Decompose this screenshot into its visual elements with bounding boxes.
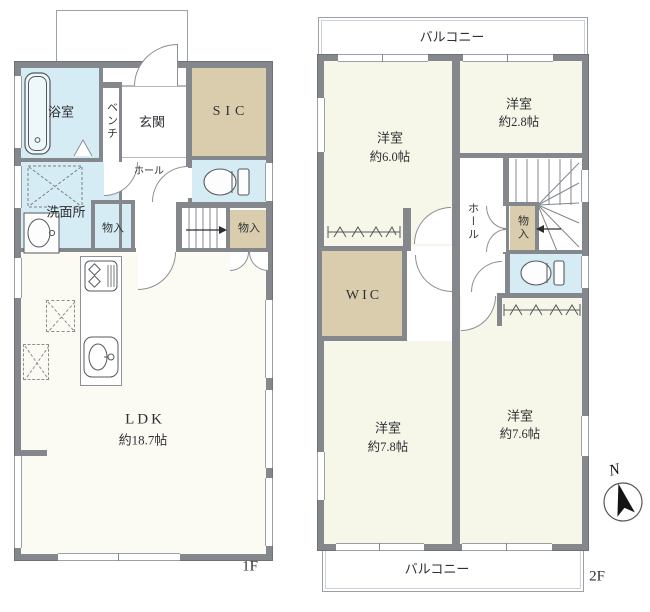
window (338, 54, 428, 62)
kitchen-sink-icon (83, 336, 119, 378)
room-label-wic: WIC (346, 289, 382, 303)
room-label-hall2f: ホール (467, 203, 478, 242)
hall-step-line (122, 157, 186, 158)
x-mark-icon (47, 301, 76, 333)
window-tick (379, 543, 380, 551)
closet-hanger-icon (502, 302, 582, 318)
wall-segment (186, 156, 272, 160)
stove-icon (84, 260, 118, 292)
wall-segment (188, 62, 272, 68)
wall-segment (452, 61, 460, 544)
wall-segment (186, 62, 192, 156)
window (265, 163, 273, 201)
room-size-6: 約6.0帖 (370, 151, 411, 164)
floor1-label: 1F (242, 560, 258, 575)
dashed-equipment-box (46, 300, 75, 332)
window (265, 478, 273, 546)
room-label-bench: ベンチ (106, 102, 117, 141)
room-label-6: 洋室 (377, 132, 403, 145)
window (14, 76, 22, 148)
stairs-icon (182, 206, 228, 252)
wall-segment (21, 158, 103, 162)
wall-segment (15, 62, 103, 68)
window (462, 543, 552, 551)
balcony-top-label: バルコニー (420, 31, 485, 44)
wall-segment (91, 200, 95, 252)
bathtub-icon (24, 72, 51, 155)
washing-machine-icon (27, 165, 83, 208)
wall-segment (91, 200, 135, 204)
compass-north-letter: N (606, 460, 623, 480)
window (14, 456, 22, 548)
window-tick (507, 54, 508, 62)
window (581, 170, 589, 202)
window (581, 256, 589, 288)
window (265, 300, 273, 378)
room-size-ldk: 約18.7帖 (119, 434, 168, 447)
room-label-storage-hall: 物入 (102, 224, 124, 235)
window-tick (118, 553, 119, 561)
window (317, 452, 325, 500)
room-label-storage-stairs: 物入 (238, 224, 260, 235)
room-label-76: 洋室 (507, 410, 533, 423)
wall-segment (497, 293, 582, 298)
wall-segment (99, 68, 103, 158)
wall-segment (131, 204, 135, 252)
window (336, 543, 424, 551)
room-size-78: 約7.8帖 (368, 441, 409, 454)
room-label-sic: SIC (213, 105, 250, 119)
window (463, 54, 553, 62)
window (14, 166, 22, 208)
dashed-equipment-box (23, 344, 49, 380)
wall-segment (403, 208, 411, 251)
room-size-28: 約2.8帖 (499, 116, 540, 129)
toilet-icon (198, 164, 256, 200)
room-label-28: 洋室 (506, 98, 532, 111)
wall-segment (322, 336, 407, 341)
balcony-bottom-label: バルコニー (405, 563, 470, 576)
folding-door-icon (72, 138, 94, 158)
compass-icon: N (597, 458, 649, 524)
room-label-78: 洋室 (375, 422, 401, 435)
floorplan-canvas: 浴室 ベンチ 玄関 SIC ホール 洗面所 物入 物入 LDK 約18.7帖 1… (0, 0, 650, 612)
floor2-label: 2F (589, 570, 605, 585)
toilet-icon (516, 257, 572, 289)
room-label-storage2f: 物入 (517, 215, 528, 241)
x-mark-icon (24, 345, 50, 381)
window (317, 98, 325, 152)
wall-segment (322, 246, 406, 251)
room-label-bath: 浴室 (48, 106, 74, 119)
wall-segment (21, 450, 47, 456)
room-label-washroom: 洗面所 (46, 206, 85, 219)
window (58, 553, 180, 561)
wall-segment (505, 254, 510, 293)
window (14, 258, 22, 298)
window-tick (382, 54, 383, 62)
room-label-entrance: 玄関 (139, 116, 165, 129)
ldk-area (21, 252, 266, 554)
window (265, 390, 273, 468)
wall-segment (402, 246, 407, 341)
room-size-76: 約7.6帖 (500, 428, 541, 441)
room-label-ldk: LDK (125, 413, 165, 428)
window (581, 416, 589, 456)
closet-hanger-icon (326, 224, 402, 240)
room-label-hall1f: ホール (134, 167, 164, 177)
window-tick (506, 543, 507, 551)
door-leaf (177, 44, 178, 86)
